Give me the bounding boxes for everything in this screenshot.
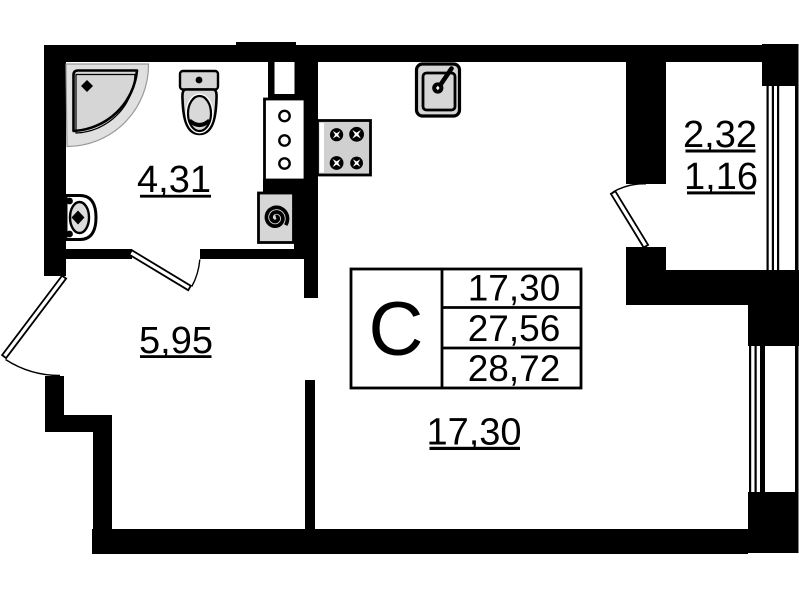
svg-text:17,30: 17,30: [468, 268, 561, 309]
svg-text:27,56: 27,56: [468, 308, 561, 349]
svg-text:28,72: 28,72: [468, 348, 561, 389]
svg-text:4,31: 4,31: [137, 159, 211, 201]
svg-text:С: С: [369, 287, 424, 372]
